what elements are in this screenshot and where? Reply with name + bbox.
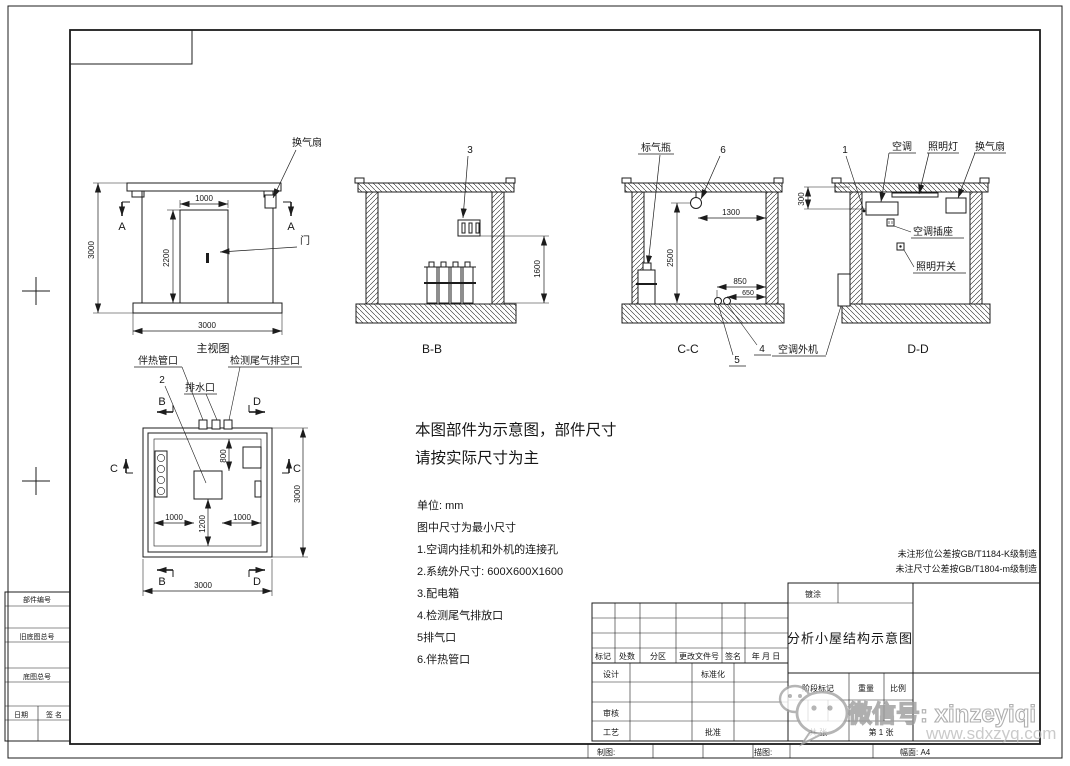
stub-drain [212,420,220,429]
cc-base-slab [622,304,784,323]
bb-notch-right [506,178,515,183]
drawing-title: 分析小屋结构示意图 [787,631,913,646]
stub-exhaust [224,420,232,429]
side-master-no: 底图总号 [23,672,51,681]
light-switch-label: 照明开关 [916,260,956,273]
dd-notch-left [832,178,841,183]
dd-fan-label: 换气扇 [975,140,1005,153]
row-process: 工艺 [603,728,619,737]
dim-door-width: 1000 [195,194,213,203]
note-item3: 3.配电箱 [417,586,459,600]
item-6-label: 6 [720,145,726,156]
drawn-by: 制图: [597,747,615,757]
base-slab [133,303,282,313]
item-3-label: 3 [467,145,473,156]
section-cc-view: 6 标气瓶 1300 2500 850 650 5 4 空调外机 [622,141,841,366]
wechat-bubble-large-icon [797,692,847,734]
plan-marker-b-bottom: B [158,576,165,588]
door [180,210,228,303]
dim-1300: 1300 [722,208,740,217]
dim-1200: 1200 [198,515,207,533]
scale-label: 比例 [890,683,906,693]
item-5-label: 5 [734,355,740,366]
dim-height: 3000 [87,241,96,259]
front-view: 1000 2200 3000 3000 A A 换气扇 门 主视图 [87,136,322,355]
plan-view: 伴热管口 检测尾气排空口 排水口 2 B D C C B D 800 1000 … [110,354,308,596]
exhaust-vent-label: 检测尾气排空口 [230,354,300,367]
notes-block: 单位: mm 图中尺寸为最小尺寸 1.空调内挂机和外机的连接孔 2.系统外尺寸:… [417,498,563,666]
watermark: 微信号: xinzeyiqi www.sdxzyq.com [780,686,1056,744]
tolerance-line1: 未注形位公差按GB/T1184-K级制造 [898,548,1037,559]
traced-by: 描图: [754,747,772,757]
row-approve: 批准 [705,727,721,737]
drawing-canvas: 1000 2200 3000 3000 A A 换气扇 门 主视图 3 [0,0,1070,766]
item-2-label: 2 [159,375,165,386]
dim-1000-right: 1000 [233,513,251,522]
ceiling-lamp [892,193,938,197]
note-item5: 5排气口 [417,630,456,644]
statement-line1: 本图部件为示意图，部件尺寸 [415,420,617,439]
lamp-label: 照明灯 [928,141,958,153]
roof-slab [127,183,281,191]
note-item6: 6.伴热管口 [417,652,470,666]
ac-outdoor-unit [838,274,850,306]
section-a-right: A [287,221,295,233]
item-1-label: 1 [842,145,848,156]
row-standardization: 标准化 [701,669,725,679]
drain-label: 排水口 [185,381,215,394]
heat-pipe-port [691,198,702,209]
dim-door-height: 2200 [162,249,171,267]
watermark-website-text: www.sdxzyq.com [925,724,1056,743]
cc-top-slab [625,183,782,192]
dd-top-slab [835,183,988,192]
section-dd-view: 1 空调 照明灯 换气扇 300 空调插座 照明开关 D-D [797,140,1006,356]
dim-1000-left: 1000 [165,513,183,522]
side-part-no: 部件编号 [23,595,51,604]
section-dd-title: D-D [907,342,929,356]
dim-2500: 2500 [666,249,675,267]
bb-notch-left [355,178,364,183]
plan-marker-b-top: B [158,396,165,408]
cad-drawing-sheet: 1000 2200 3000 3000 A A 换气扇 门 主视图 3 [0,0,1070,766]
dd-wall-right [970,192,982,304]
dim-850: 850 [733,277,747,286]
ac-socket-symbol [887,219,894,226]
dim-3000-bottom: 3000 [194,581,212,590]
col-count: 处数 [619,651,635,661]
col-zone: 分区 [650,652,666,661]
ac-outdoor-label: 空调外机 [778,343,818,356]
plan-marker-d-top: D [253,396,261,408]
plan-system-cabinet [194,471,222,499]
dim-300: 300 [797,192,806,206]
heat-pipe-label: 伴热管口 [138,354,178,367]
col-sign: 签名 [725,651,741,661]
plan-marker-c-right: C [293,463,301,475]
tolerance-line2: 未注尺寸公差按GB/T1804-m级制造 [895,563,1037,574]
bb-wall-right [492,192,504,304]
item-4-label: 4 [759,344,765,355]
tolerance-notes: 未注形位公差按GB/T1184-K级制造 未注尺寸公差按GB/T1804-m级制… [895,548,1037,574]
section-a-left: A [118,221,126,233]
dim-650: 650 [742,290,754,297]
side-date: 日期 [14,711,28,719]
ac-socket-label: 空调插座 [913,225,953,238]
statement-block: 本图部件为示意图，部件尺寸 请按实际尺寸为主 [415,420,617,467]
plan-marker-d-bottom: D [253,576,261,588]
dim-1600: 1600 [533,260,542,278]
exhaust-fan-box [946,198,966,213]
vent-port-5 [715,298,722,305]
row-review: 审核 [603,708,619,718]
note-min-size: 图中尺寸为最小尺寸 [417,520,516,534]
note-item1: 1.空调内挂机和外机的连接孔 [417,542,558,556]
gas-bottle-label: 标气瓶 [641,141,671,154]
bb-top-slab [358,183,514,192]
paper-size: 幅面: A4 [900,747,931,757]
dim-800: 800 [219,449,228,463]
note-item2: 2.系统外尺寸: 600X600X1600 [417,564,563,578]
bottom-strip: 制图: 描图: 幅面: A4 [588,744,931,758]
plan-cylinder-rack [155,451,167,497]
note-unit: 单位: mm [417,498,463,512]
bb-wall-left [366,192,378,304]
registration-marks [22,277,50,495]
stub-heat-pipe [199,420,207,429]
cc-wall-right [766,192,778,304]
side-table: 部件编号 旧底图总号 底图总号 日期 签 名 [5,592,70,741]
col-mark: 标记 [595,651,611,661]
sheet-no: 第 1 张 [869,727,894,737]
coating-cell: 镀涂 [805,589,821,599]
vent-fan-box [265,195,276,208]
plan-wall-box [255,481,261,497]
dd-notch-right [980,178,989,183]
row-design: 设计 [603,669,619,679]
plan-right-box [243,447,261,468]
front-view-title: 主视图 [197,341,230,355]
section-cc-title: C-C [677,342,699,356]
col-change-doc: 更改文件号 [679,651,719,661]
col-date: 年 月 日 [752,651,780,661]
section-bb-view: 3 1600 B-B [355,145,549,356]
gas-cylinders [424,262,476,303]
vent-port-4 [724,298,731,305]
door-label: 门 [300,234,310,247]
cc-notch-right [774,178,783,183]
top-left-box [70,30,192,64]
note-item4: 4.检测尾气排放口 [417,608,503,622]
statement-line2: 请按实际尺寸为主 [415,449,539,467]
weight-label: 重量 [858,683,874,693]
dim-3000-side: 3000 [293,485,302,503]
door-handle [206,253,209,263]
section-bb-title: B-B [422,342,442,356]
ac-indoor-unit [866,202,898,215]
dd-base-slab [842,304,990,323]
plan-marker-c-left: C [110,463,118,475]
ac-label: 空调 [892,140,912,153]
side-old-master-no: 旧底图总号 [20,632,55,641]
dim-width: 3000 [198,321,216,330]
fan-label: 换气扇 [292,136,322,149]
bb-base-slab [356,304,516,323]
side-sign: 签 名 [46,710,62,719]
cc-notch-left [622,178,631,183]
